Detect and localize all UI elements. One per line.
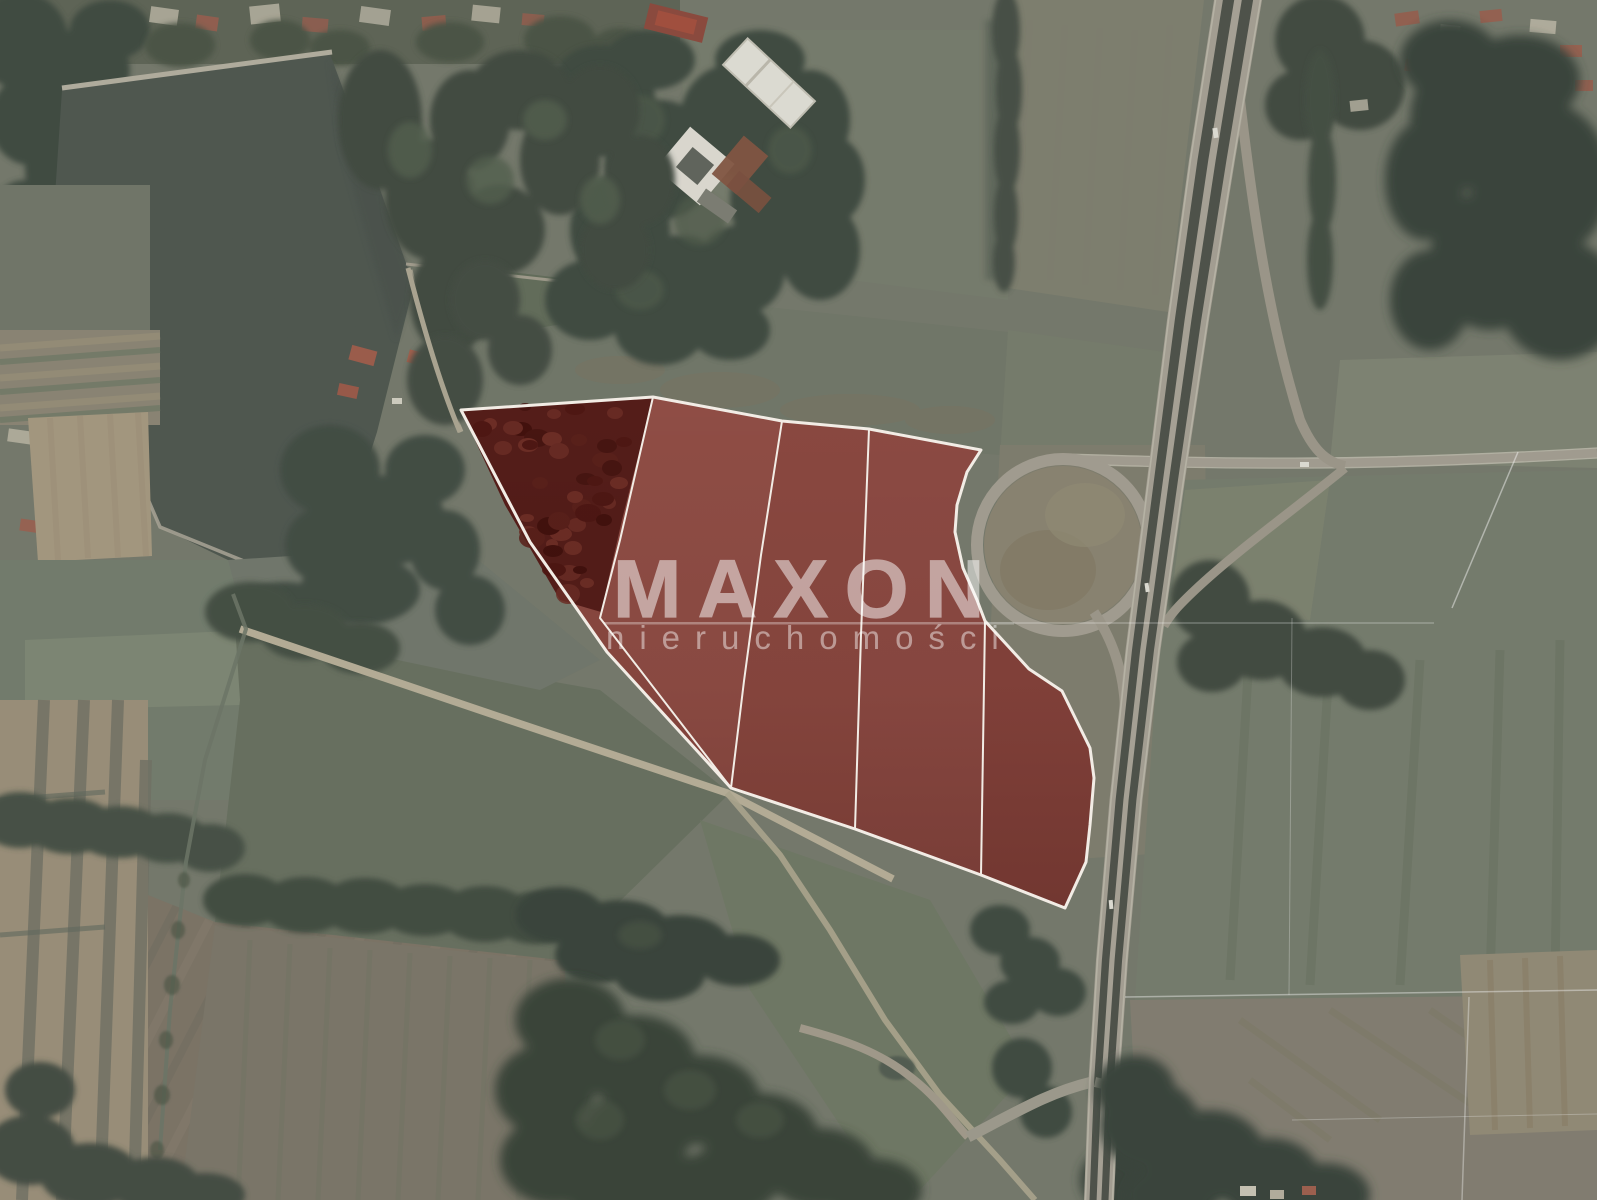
svg-text:nieruchomości: nieruchomości [606, 619, 1014, 656]
